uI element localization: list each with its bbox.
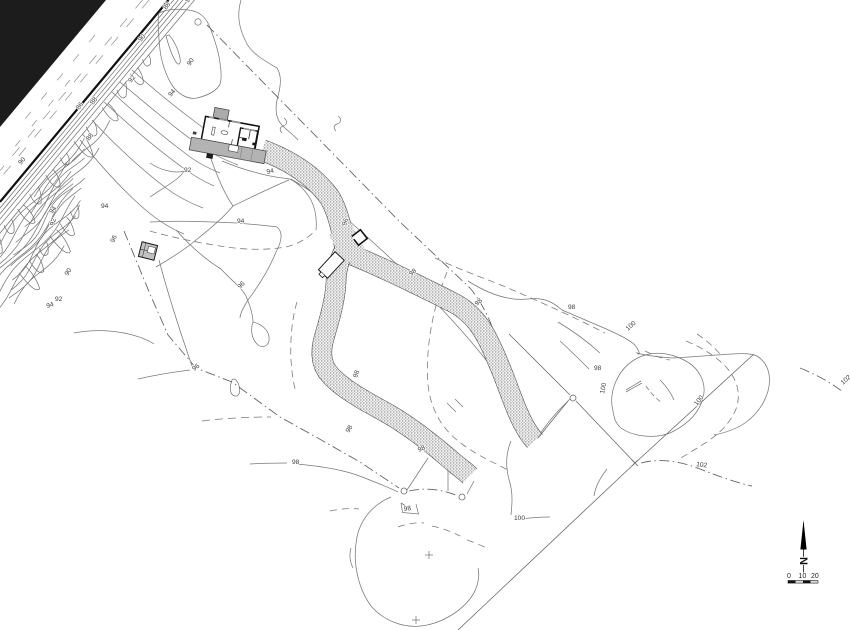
svg-text:98: 98 xyxy=(403,505,412,513)
svg-text:94: 94 xyxy=(101,203,109,210)
svg-text:98: 98 xyxy=(594,365,602,372)
svg-text:100: 100 xyxy=(514,515,525,522)
svg-text:10: 10 xyxy=(799,573,807,580)
svg-text:N: N xyxy=(797,557,809,565)
svg-text:0: 0 xyxy=(787,573,791,580)
svg-text:94: 94 xyxy=(237,218,245,225)
svg-text:92: 92 xyxy=(55,296,63,303)
svg-text:92: 92 xyxy=(184,167,192,174)
svg-text:98: 98 xyxy=(292,459,300,466)
svg-text:98: 98 xyxy=(568,304,576,311)
svg-text:20: 20 xyxy=(811,573,819,580)
